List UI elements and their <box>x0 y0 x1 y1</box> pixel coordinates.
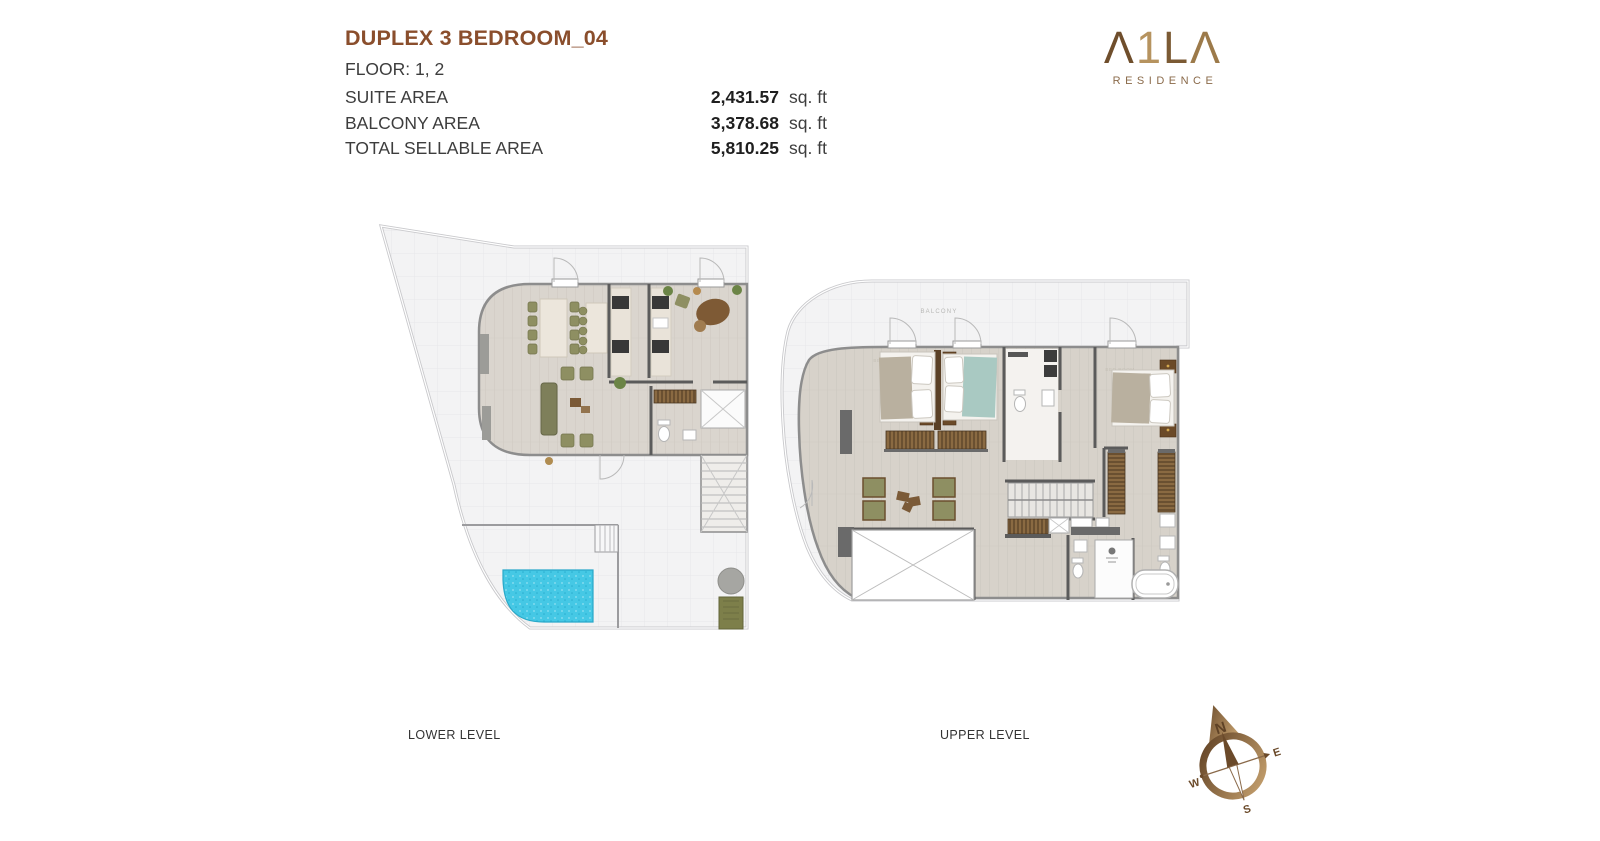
media-unit <box>480 334 489 374</box>
area-unit: sq. ft <box>789 111 827 137</box>
sink <box>1074 540 1087 552</box>
wardrobe <box>654 390 696 403</box>
area-label: SUITE AREA <box>345 85 701 111</box>
brochure-page: DUPLEX 3 BEDROOM_04 FLOOR: 1, 2 SUITE AR… <box>0 0 1600 841</box>
area-row-total: TOTAL SELLABLE AREA 5,810.25 sq. ft <box>345 136 827 162</box>
toilet <box>1073 564 1083 578</box>
area-value: 5,810.25 <box>701 136 779 162</box>
staircase <box>1008 483 1093 517</box>
floor-lamp <box>545 457 553 465</box>
compass-west-label: W <box>1188 776 1202 791</box>
vanity <box>1071 527 1120 535</box>
toilet <box>659 427 670 442</box>
brand-letter: Λ <box>1104 22 1136 73</box>
staircase <box>701 455 747 532</box>
area-unit: sq. ft <box>789 85 827 111</box>
pillow <box>944 386 963 413</box>
upper-level-caption: UPPER LEVEL <box>940 728 1030 742</box>
pillow <box>911 355 932 384</box>
coffee-table <box>581 406 590 413</box>
upper-level-floorplan: BALCONY BED ROOM BED ROOM <box>770 255 1190 610</box>
bed-blanket <box>1111 372 1151 423</box>
area-row-balcony: BALCONY AREA 3,378.68 sq. ft <box>345 111 827 137</box>
pillow <box>1149 399 1170 423</box>
side-table <box>693 287 701 295</box>
sink <box>1042 390 1054 406</box>
pillow <box>944 357 963 384</box>
wardrobe <box>886 431 934 449</box>
area-label: TOTAL SELLABLE AREA <box>345 136 701 162</box>
brand-logo: Λ1LΛ RESIDENCE <box>1086 24 1240 87</box>
bed-blanket <box>962 356 997 417</box>
wardrobe <box>1108 452 1125 514</box>
plan-info-header: DUPLEX 3 BEDROOM_04 FLOOR: 1, 2 SUITE AR… <box>345 26 827 162</box>
round-table <box>718 568 744 594</box>
sink <box>683 430 696 440</box>
lower-level-caption: LOWER LEVEL <box>408 728 501 742</box>
area-row-suite: SUITE AREA 2,431.57 sq. ft <box>345 85 827 111</box>
wall-stub <box>840 410 852 454</box>
compass-east-label: E <box>1272 746 1283 760</box>
area-unit: sq. ft <box>789 136 827 162</box>
sink <box>1160 514 1175 527</box>
coffee-table <box>570 398 581 407</box>
brand-letter: Λ <box>1190 22 1222 73</box>
area-table: SUITE AREA 2,431.57 sq. ft BALCONY AREA … <box>345 85 827 162</box>
plant <box>614 377 626 389</box>
floor-label: FLOOR: 1, 2 <box>345 59 827 80</box>
sofa <box>541 383 557 435</box>
toilet <box>1015 397 1026 412</box>
void-area <box>852 530 974 600</box>
terrace-steps <box>595 525 618 552</box>
desk-chair <box>694 320 706 332</box>
brand-letter: 1 <box>1136 22 1163 73</box>
bed-blanket <box>879 356 913 419</box>
swimming-pool <box>503 570 593 622</box>
plan-title: DUPLEX 3 BEDROOM_04 <box>345 26 827 51</box>
pillow <box>1149 373 1170 397</box>
brand-subtitle: RESIDENCE <box>1086 75 1240 87</box>
pillow <box>911 389 932 418</box>
kitchen-sink <box>653 318 668 328</box>
wardrobe <box>938 431 986 449</box>
shower-head <box>1109 548 1116 555</box>
brand-letter: L <box>1163 22 1190 73</box>
compass-south-label: S <box>1242 803 1253 817</box>
lower-level-floorplan <box>365 218 750 633</box>
area-value: 2,431.57 <box>701 85 779 111</box>
balcony-label: BALCONY <box>920 309 957 315</box>
bathroom-middle <box>1006 349 1058 460</box>
bedroom-left <box>879 350 997 452</box>
brand-wordmark: Λ1LΛ <box>1086 24 1240 72</box>
kitchen-island <box>579 303 607 354</box>
plant <box>663 286 673 296</box>
wardrobe <box>1008 519 1048 534</box>
plant <box>732 285 742 295</box>
compass: N E W S <box>1150 688 1298 828</box>
media-unit <box>482 406 491 440</box>
area-label: BALCONY AREA <box>345 111 701 137</box>
wardrobe <box>1158 452 1175 512</box>
area-value: 3,378.68 <box>701 111 779 137</box>
sink <box>1160 536 1175 549</box>
